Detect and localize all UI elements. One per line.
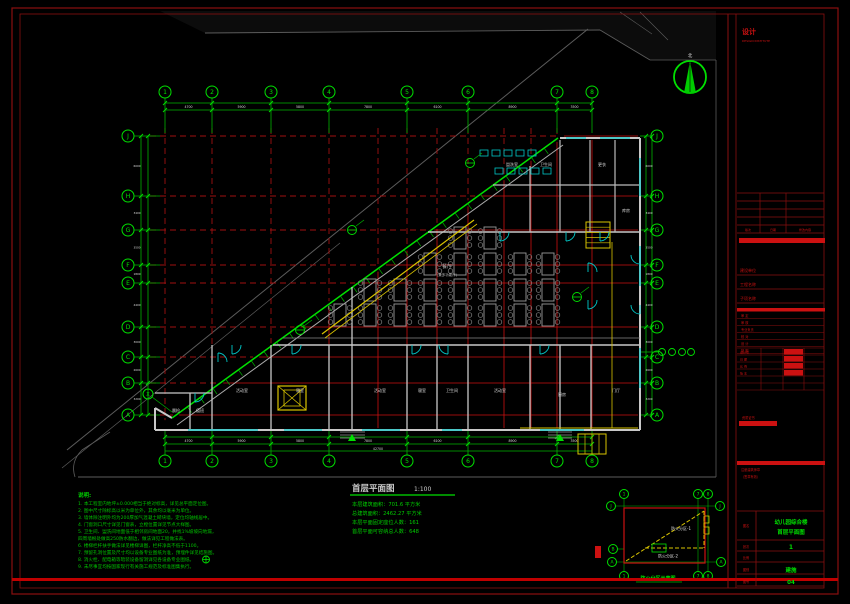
svg-text:设 计: 设 计 bbox=[741, 341, 749, 346]
svg-text:1800: 1800 bbox=[133, 272, 140, 276]
svg-text:3400: 3400 bbox=[133, 211, 140, 215]
svg-text:本层平面固定座位人数：161: 本层平面固定座位人数：161 bbox=[352, 518, 419, 526]
svg-text:版 本: 版 本 bbox=[740, 371, 747, 376]
svg-text:(兼多功能厅): (兼多功能厅) bbox=[437, 272, 458, 277]
svg-text:说明:: 说明: bbox=[78, 491, 91, 499]
svg-text:4: 4 bbox=[327, 458, 331, 465]
svg-text:3500: 3500 bbox=[570, 439, 578, 443]
svg-text:图名: 图名 bbox=[743, 523, 749, 528]
svg-text:设计号: 设计号 bbox=[740, 350, 749, 355]
svg-text:F: F bbox=[655, 262, 659, 269]
svg-text:04: 04 bbox=[787, 580, 795, 586]
svg-text:E: E bbox=[126, 280, 130, 287]
svg-text:防火分区-1: 防火分区-1 bbox=[671, 525, 691, 531]
svg-text:活动室: 活动室 bbox=[236, 387, 248, 393]
cad-sheet: 4700470059005900580058007800780061006100… bbox=[0, 0, 850, 604]
svg-text:工程名称: 工程名称 bbox=[740, 281, 756, 287]
svg-text:3500: 3500 bbox=[645, 246, 652, 250]
svg-text:3200: 3200 bbox=[645, 397, 652, 401]
svg-text:8: 8 bbox=[707, 492, 710, 498]
svg-text:1:100: 1:100 bbox=[414, 486, 431, 493]
svg-text:版次: 版次 bbox=[745, 227, 751, 232]
svg-text:B: B bbox=[126, 380, 130, 387]
svg-text:4400: 4400 bbox=[645, 303, 652, 307]
svg-text:卫生间: 卫生间 bbox=[446, 387, 458, 393]
svg-text:DESIGN INSTITUTE: DESIGN INSTITUTE bbox=[742, 39, 770, 43]
svg-text:首层平面可容纳总人数：648: 首层平面可容纳总人数：648 bbox=[352, 527, 419, 535]
svg-text:7: 7 bbox=[555, 89, 559, 96]
svg-text:D: D bbox=[655, 324, 660, 331]
svg-text:7800: 7800 bbox=[364, 439, 372, 443]
svg-text:5: 5 bbox=[405, 458, 409, 465]
svg-text:H: H bbox=[126, 193, 131, 200]
svg-text:2. 图中尺寸除标高以米为单位外，其余均以毫米为单位。: 2. 图中尺寸除标高以米为单位外，其余均以毫米为单位。 bbox=[78, 507, 194, 514]
svg-text:E: E bbox=[655, 280, 659, 287]
svg-text:4700: 4700 bbox=[184, 105, 192, 109]
svg-text:活动室: 活动室 bbox=[494, 387, 506, 393]
svg-text:9. 未尽事宜均按国家现行有关施工规范及标准图集执行。: 9. 未尽事宜均按国家现行有关施工规范及标准图集执行。 bbox=[78, 563, 194, 570]
svg-text:3500: 3500 bbox=[133, 246, 140, 250]
svg-text:日 期: 日 期 bbox=[740, 357, 747, 362]
svg-text:7. 预留孔洞位置及尺寸均以设备专业图纸为准，预埋件详见结施: 7. 预留孔洞位置及尺寸均以设备专业图纸为准，预埋件详见结施图。 bbox=[78, 549, 217, 556]
svg-text:日期: 日期 bbox=[770, 227, 776, 232]
svg-text:活动室: 活动室 bbox=[374, 387, 386, 393]
svg-text:首层平面图: 首层平面图 bbox=[352, 483, 395, 494]
svg-text:G: G bbox=[126, 227, 131, 234]
svg-text:7800: 7800 bbox=[364, 105, 372, 109]
svg-text:6: 6 bbox=[466, 89, 470, 96]
svg-text:8. 消火栓、配电箱等暗装设备留洞详见各设备专业图纸。: 8. 消火栓、配电箱等暗装设备留洞详见各设备专业图纸。 bbox=[78, 556, 194, 563]
svg-text:幼儿园综合楼: 幼儿园综合楼 bbox=[774, 518, 808, 526]
svg-text:3: 3 bbox=[269, 458, 273, 465]
svg-text:门厅: 门厅 bbox=[612, 387, 620, 393]
svg-text:餐厅: 餐厅 bbox=[442, 263, 452, 270]
svg-text:3000: 3000 bbox=[645, 340, 652, 344]
svg-text:寝室: 寝室 bbox=[296, 387, 304, 393]
svg-text:防火分区-2: 防火分区-2 bbox=[658, 553, 678, 559]
svg-text:7: 7 bbox=[555, 458, 559, 465]
svg-text:C: C bbox=[126, 354, 130, 361]
svg-text:8900: 8900 bbox=[508, 105, 516, 109]
cad-drawing-svg: 4700470059005900580058007800780061006100… bbox=[0, 0, 850, 604]
svg-text:5800: 5800 bbox=[296, 105, 304, 109]
svg-text:1800: 1800 bbox=[645, 272, 652, 276]
svg-text:卫生间: 卫生间 bbox=[540, 161, 552, 167]
svg-text:3: 3 bbox=[269, 89, 273, 96]
svg-text:建施: 建施 bbox=[785, 566, 797, 574]
svg-text:6100: 6100 bbox=[433, 105, 441, 109]
svg-text:C: C bbox=[655, 354, 659, 361]
svg-text:首层平面图: 首层平面图 bbox=[777, 528, 805, 536]
svg-text:4: 4 bbox=[327, 89, 331, 96]
svg-text:审 核: 审 核 bbox=[741, 320, 749, 325]
svg-text:1: 1 bbox=[163, 89, 167, 96]
svg-text:2600: 2600 bbox=[645, 368, 652, 372]
svg-text:3400: 3400 bbox=[645, 211, 652, 215]
svg-text:J: J bbox=[718, 504, 720, 510]
svg-text:3200: 3200 bbox=[133, 397, 140, 401]
svg-text:子项名称: 子项名称 bbox=[740, 295, 756, 301]
svg-text:（签章有效）: （签章有效） bbox=[741, 474, 760, 479]
svg-text:盥洗室: 盥洗室 bbox=[506, 161, 518, 167]
svg-text:修改内容: 修改内容 bbox=[799, 227, 811, 232]
svg-text:4700: 4700 bbox=[184, 439, 192, 443]
svg-text:图别: 图别 bbox=[743, 567, 749, 572]
svg-text:张次: 张次 bbox=[743, 544, 750, 549]
svg-text:寝室: 寝室 bbox=[418, 387, 426, 393]
svg-text:42700: 42700 bbox=[373, 447, 383, 451]
svg-text:1: 1 bbox=[623, 492, 626, 498]
svg-text:3000: 3000 bbox=[133, 340, 140, 344]
svg-text:本层建筑面积：701.6 平方米: 本层建筑面积：701.6 平方米 bbox=[352, 500, 421, 508]
svg-text:8: 8 bbox=[590, 89, 594, 96]
svg-text:J: J bbox=[609, 504, 611, 510]
svg-text:B: B bbox=[611, 547, 614, 553]
svg-text:6000: 6000 bbox=[133, 164, 140, 168]
svg-text:比 例: 比 例 bbox=[740, 364, 747, 369]
svg-text:2: 2 bbox=[210, 89, 214, 96]
svg-text:厨房: 厨房 bbox=[558, 391, 566, 397]
svg-text:总建筑面积：2462.27 平方米: 总建筑面积：2462.27 平方米 bbox=[352, 509, 423, 517]
svg-text:X: X bbox=[146, 392, 150, 398]
svg-text:4400: 4400 bbox=[133, 303, 140, 307]
svg-text:7: 7 bbox=[697, 492, 700, 498]
svg-text:4. 门窗洞口尺寸详见门窗表，立樘位置详见节点大样图。: 4. 门窗洞口尺寸详见门窗表，立樘位置详见节点大样图。 bbox=[78, 521, 194, 528]
svg-text:5900: 5900 bbox=[237, 105, 245, 109]
svg-text:四周墙根处做高250防水翻边，做法详见工程做法表。: 四周墙根处做高250防水翻边，做法详见工程做法表。 bbox=[78, 535, 188, 542]
svg-text:库房: 库房 bbox=[622, 207, 630, 213]
svg-text:5800: 5800 bbox=[296, 439, 304, 443]
svg-text:6. 楼梯栏杆扶手做法详见楼梯详图，栏杆净高不低于1100。: 6. 楼梯栏杆扶手做法详见楼梯详图，栏杆净高不低于1100。 bbox=[78, 542, 201, 549]
svg-text:6100: 6100 bbox=[433, 439, 441, 443]
svg-text:B: B bbox=[655, 380, 659, 387]
svg-text:图号: 图号 bbox=[743, 579, 749, 584]
svg-text:8: 8 bbox=[590, 458, 594, 465]
svg-text:F: F bbox=[126, 262, 130, 269]
svg-text:比例: 比例 bbox=[743, 555, 749, 560]
svg-text:D: D bbox=[126, 324, 131, 331]
svg-text:J: J bbox=[655, 133, 658, 140]
svg-text:2: 2 bbox=[210, 458, 214, 465]
svg-text:5900: 5900 bbox=[237, 439, 245, 443]
svg-text:6000: 6000 bbox=[645, 164, 652, 168]
svg-text:审 定: 审 定 bbox=[741, 313, 749, 318]
svg-text:5. 卫生间、盥洗间地面低于相邻房间地面20，并找1%坡坡向: 5. 卫生间、盥洗间地面低于相邻房间地面20，并找1%坡坡向地漏， bbox=[78, 528, 216, 535]
svg-text:注册建筑师章: 注册建筑师章 bbox=[741, 467, 761, 472]
svg-text:1: 1 bbox=[789, 544, 793, 551]
svg-text:3. 墙体除注明外均为200厚加气混凝土砌块墙，定位均轴线居: 3. 墙体除注明外均为200厚加气混凝土砌块墙，定位均轴线居中。 bbox=[78, 514, 212, 521]
svg-text:2600: 2600 bbox=[133, 368, 140, 372]
svg-text:5: 5 bbox=[405, 89, 409, 96]
svg-text:8900: 8900 bbox=[508, 439, 516, 443]
svg-text:1: 1 bbox=[163, 458, 167, 465]
svg-text:J: J bbox=[126, 133, 129, 140]
svg-text:G: G bbox=[655, 227, 660, 234]
svg-text:6: 6 bbox=[466, 458, 470, 465]
svg-text:校 对: 校 对 bbox=[741, 334, 749, 339]
svg-text:1. 本工程室内地坪±0.000相当于绝对标高，详见总平面定: 1. 本工程室内地坪±0.000相当于绝对标高，详见总平面定位图。 bbox=[78, 500, 211, 507]
svg-text:北: 北 bbox=[688, 52, 693, 59]
svg-text:值班: 值班 bbox=[196, 407, 204, 413]
svg-text:3500: 3500 bbox=[570, 105, 578, 109]
svg-text:建设单位: 建设单位 bbox=[740, 267, 756, 273]
svg-text:设计: 设计 bbox=[742, 27, 756, 36]
svg-text:晨检: 晨检 bbox=[172, 407, 180, 413]
svg-text:资质证书: 资质证书 bbox=[742, 415, 756, 420]
svg-text:H: H bbox=[655, 193, 660, 200]
svg-text:专业负责: 专业负责 bbox=[741, 327, 754, 332]
svg-text:更衣: 更衣 bbox=[598, 161, 606, 167]
